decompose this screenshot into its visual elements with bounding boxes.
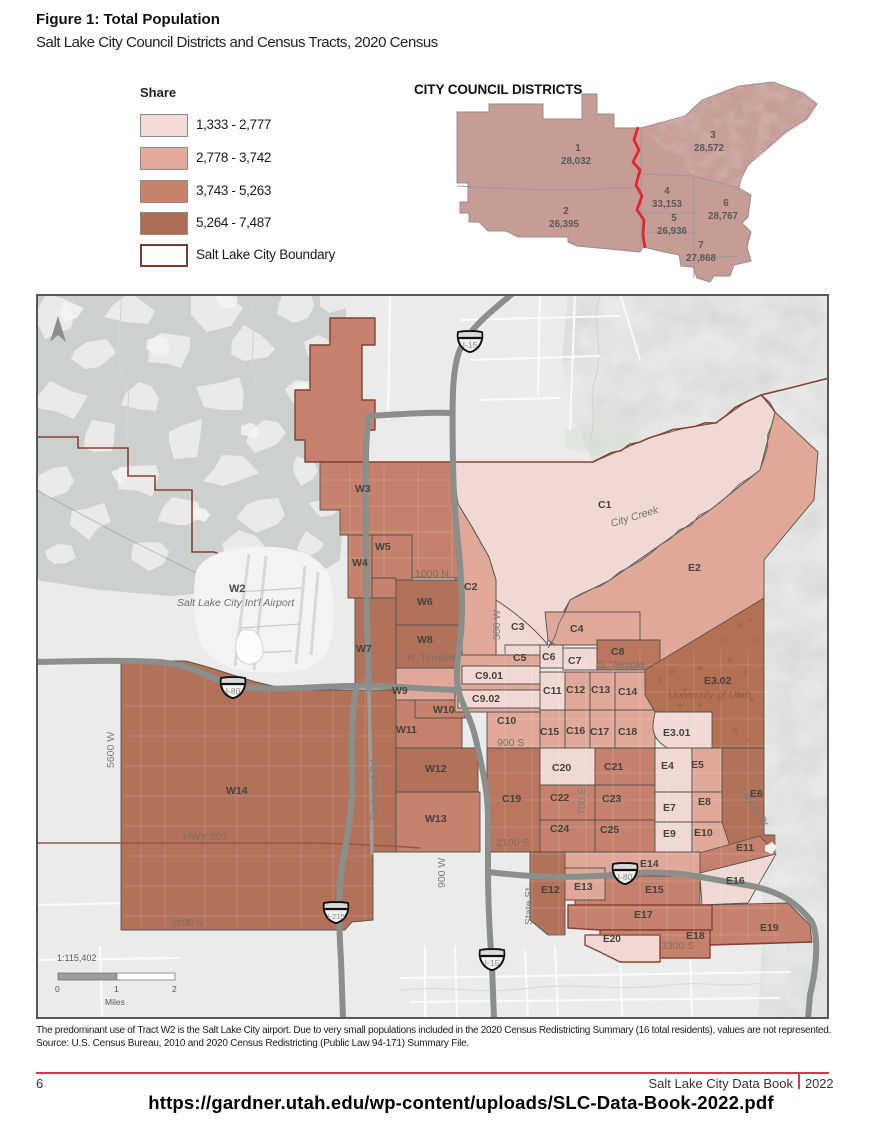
svg-text:HWY 201: HWY 201 (183, 831, 228, 843)
svg-text:E17: E17 (634, 909, 653, 921)
svg-text:C24: C24 (550, 823, 569, 835)
svg-text:C10: C10 (497, 715, 516, 727)
svg-text:E5: E5 (691, 759, 704, 771)
svg-text:W3: W3 (355, 483, 371, 495)
svg-text:W4: W4 (352, 557, 368, 569)
svg-text:E10: E10 (694, 827, 713, 839)
svg-text:C17: C17 (590, 726, 609, 738)
svg-text:W2: W2 (229, 583, 246, 595)
svg-text:1000 N: 1000 N (415, 568, 449, 580)
svg-text:E3.01: E3.01 (663, 727, 691, 739)
svg-text:E8: E8 (698, 796, 711, 808)
svg-text:E11: E11 (736, 842, 754, 854)
svg-text:C14: C14 (618, 686, 637, 698)
svg-text:C3: C3 (511, 621, 525, 633)
svg-text:E4: E4 (661, 760, 674, 772)
svg-text:C19: C19 (502, 793, 521, 805)
svg-text:E7: E7 (663, 802, 676, 814)
svg-text:28,767: 28,767 (708, 211, 739, 222)
svg-text:C16: C16 (566, 725, 585, 737)
svg-text:2: 2 (563, 206, 569, 217)
svg-text:Redwood Rd: Redwood Rd (368, 759, 380, 820)
svg-text:1:115,402: 1:115,402 (57, 953, 96, 963)
svg-text:0: 0 (55, 984, 60, 994)
svg-text:26,395: 26,395 (549, 219, 580, 230)
svg-text:E18: E18 (686, 930, 705, 942)
svg-text:6: 6 (723, 198, 729, 209)
svg-text:I-15: I-15 (463, 340, 478, 350)
svg-text:5600 W: 5600 W (105, 732, 117, 768)
svg-text:C12: C12 (566, 684, 585, 696)
svg-text:E13: E13 (574, 881, 593, 893)
svg-text:W10: W10 (433, 704, 455, 716)
svg-text:E2: E2 (688, 562, 701, 574)
svg-text:900 S: 900 S (497, 737, 524, 749)
svg-text:W11: W11 (396, 724, 417, 736)
svg-text:C6: C6 (542, 651, 556, 663)
svg-text:E6: E6 (750, 788, 763, 800)
svg-text:C18: C18 (618, 726, 637, 738)
svg-text:5: 5 (671, 213, 677, 224)
svg-text:S. Temple: S. Temple (598, 659, 645, 671)
svg-text:W7: W7 (356, 643, 372, 655)
svg-text:C1: C1 (598, 499, 612, 511)
svg-text:2100 S: 2100 S (496, 837, 529, 849)
svg-text:4: 4 (664, 186, 670, 197)
svg-text:900 W: 900 W (436, 858, 448, 888)
svg-text:C5: C5 (513, 652, 527, 664)
svg-text:3100 S: 3100 S (170, 917, 203, 929)
svg-text:C21: C21 (604, 761, 623, 773)
svg-text:E12: E12 (541, 884, 560, 896)
svg-text:E14: E14 (640, 858, 659, 870)
svg-text:E9: E9 (663, 828, 676, 840)
svg-text:C9.02: C9.02 (472, 693, 500, 705)
svg-text:7: 7 (698, 240, 704, 251)
svg-text:28,572: 28,572 (694, 143, 725, 154)
svg-text:C25: C25 (600, 824, 619, 836)
svg-text:I-80: I-80 (618, 872, 633, 882)
svg-text:E3.02: E3.02 (704, 675, 732, 687)
svg-text:W5: W5 (375, 541, 391, 553)
svg-text:W6: W6 (417, 596, 433, 608)
svg-text:N. Temple: N. Temple (407, 652, 454, 664)
svg-text:W8: W8 (417, 634, 433, 646)
svg-text:C13: C13 (591, 684, 610, 696)
svg-text:W9: W9 (392, 685, 408, 697)
svg-text:33,153: 33,153 (652, 199, 683, 210)
svg-text:C11: C11 (543, 685, 562, 697)
svg-text:W14: W14 (226, 785, 248, 797)
svg-text:1: 1 (575, 143, 581, 154)
svg-text:C20: C20 (552, 762, 571, 774)
svg-text:C2: C2 (464, 581, 478, 593)
svg-text:27,868: 27,868 (686, 253, 717, 264)
svg-text:2: 2 (172, 984, 177, 994)
svg-text:1: 1 (114, 984, 119, 994)
svg-text:W12: W12 (425, 763, 447, 775)
svg-text:University of Utah: University of Utah (668, 689, 751, 701)
svg-text:C15: C15 (540, 726, 559, 738)
svg-text:State St: State St (523, 888, 535, 925)
svg-text:E19: E19 (760, 922, 779, 934)
svg-text:Salt Lake City Int'l Airport: Salt Lake City Int'l Airport (177, 597, 295, 609)
svg-text:700 E: 700 E (576, 788, 588, 815)
svg-text:I-215: I-215 (327, 912, 344, 921)
svg-text:C22: C22 (550, 792, 569, 804)
svg-text:E20: E20 (603, 934, 621, 945)
svg-text:300 W: 300 W (491, 610, 503, 640)
svg-text:26,936: 26,936 (657, 226, 688, 237)
svg-text:I-80: I-80 (226, 686, 241, 696)
svg-text:C4: C4 (570, 623, 584, 635)
svg-text:C7: C7 (568, 655, 582, 667)
svg-text:E15: E15 (645, 884, 664, 896)
svg-text:C9.01: C9.01 (475, 670, 503, 682)
svg-text:C8: C8 (611, 646, 625, 658)
svg-text:3: 3 (710, 130, 716, 141)
svg-text:C23: C23 (602, 793, 621, 805)
svg-text:W13: W13 (425, 813, 447, 825)
svg-text:E16: E16 (726, 875, 745, 887)
svg-text:I-15: I-15 (485, 958, 500, 968)
svg-text:Miles: Miles (105, 997, 125, 1007)
svg-text:28,032: 28,032 (561, 156, 592, 167)
